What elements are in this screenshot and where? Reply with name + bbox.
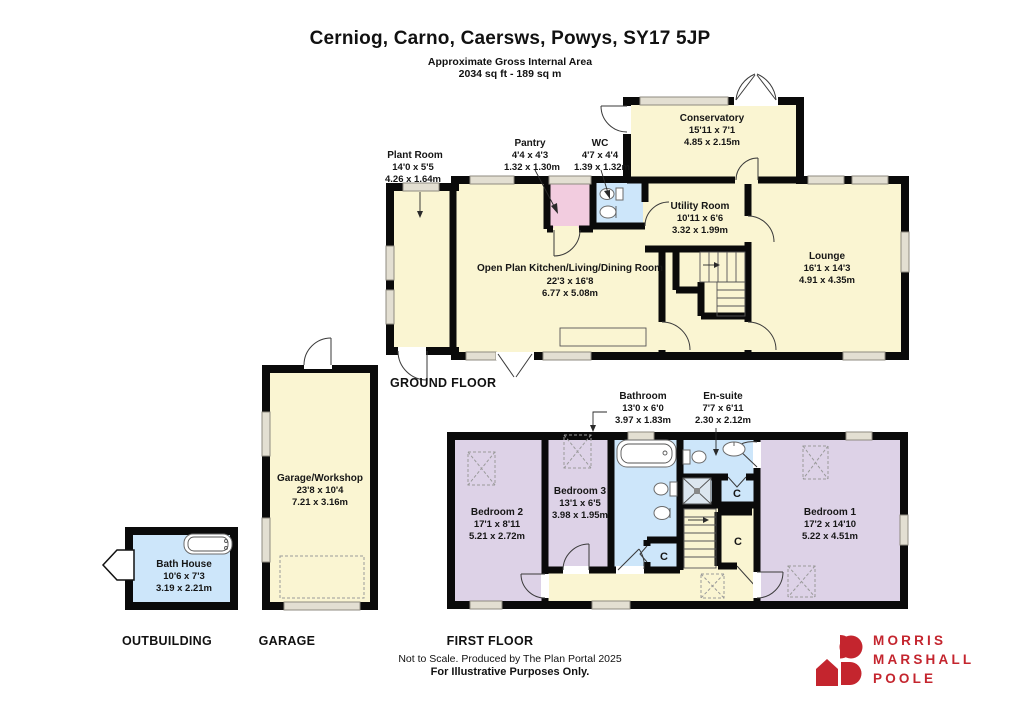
room-label-wc: WC 4'7 x 4'4 1.39 x 1.32m: [574, 138, 630, 173]
svg-text:15'11 x 7'1: 15'11 x 7'1: [689, 125, 736, 136]
wc-sink-icon: [600, 206, 616, 218]
logo-line-poole: POOLE: [873, 669, 974, 688]
svg-text:1.32 x 1.30m: 1.32 x 1.30m: [504, 162, 560, 173]
svg-text:17'2 x 14'10: 17'2 x 14'10: [804, 519, 856, 530]
shower-icon: [683, 478, 711, 504]
svg-text:WC: WC: [592, 138, 609, 149]
svg-text:2.30 x 2.12m: 2.30 x 2.12m: [695, 415, 751, 426]
svg-text:Bathroom: Bathroom: [619, 391, 666, 402]
svg-text:1.39 x 1.32m: 1.39 x 1.32m: [574, 162, 630, 173]
room-label-plant-room: Plant Room 14'0 x 5'5 4.26 x 1.64m: [385, 150, 443, 185]
svg-text:Garage/Workshop: Garage/Workshop: [277, 473, 363, 484]
room-label-bath-house: Bath House 10'6 x 7'3 3.19 x 2.21m: [156, 559, 212, 594]
garage-label: GARAGE: [245, 634, 329, 648]
ensuite-toilet-icon: [683, 450, 706, 464]
svg-text:4'7 x 4'4: 4'7 x 4'4: [582, 150, 619, 161]
floorplan-page: Cerniog, Carno, Caersws, Powys, SY17 5JP…: [0, 0, 1020, 720]
room-label-bathroom: Bathroom 13'0 x 6'0 3.97 x 1.83m: [615, 391, 671, 426]
svg-text:16'1 x 14'3: 16'1 x 14'3: [804, 263, 851, 274]
room-label-conservatory: Conservatory 15'11 x 7'1 4.85 x 2.15m: [680, 113, 745, 148]
first-floor-plan: C C C Bathroom 13'0 x 6'0 3.97 x 1.83m E…: [451, 391, 908, 609]
outbuilding-label: OUTBUILDING: [104, 634, 230, 648]
svg-text:Lounge: Lounge: [809, 251, 846, 262]
svg-text:3.97 x 1.83m: 3.97 x 1.83m: [615, 415, 671, 426]
svg-text:Plant Room: Plant Room: [387, 150, 443, 161]
svg-text:Utility Room: Utility Room: [671, 201, 730, 212]
svg-text:Conservatory: Conservatory: [680, 113, 745, 124]
svg-text:10'6 x 7'3: 10'6 x 7'3: [163, 571, 205, 582]
svg-text:13'0 x 6'0: 13'0 x 6'0: [622, 403, 664, 414]
agency-logo-mark-icon: [812, 631, 864, 691]
svg-text:6.77 x 5.08m: 6.77 x 5.08m: [542, 288, 598, 299]
svg-text:4.85 x 2.15m: 4.85 x 2.15m: [684, 137, 740, 148]
ensuite-sink-icon: [723, 442, 745, 456]
svg-text:5.22 x 4.51m: 5.22 x 4.51m: [802, 531, 858, 542]
svg-text:En-suite: En-suite: [703, 391, 743, 402]
ground-floor-plan: Plant Room 14'0 x 5'5 4.26 x 1.64m Pantr…: [385, 74, 909, 380]
svg-text:4.26 x 1.64m: 4.26 x 1.64m: [385, 174, 441, 185]
bathroom-toilet-icon: [654, 482, 677, 496]
svg-text:7.21 x 3.16m: 7.21 x 3.16m: [292, 497, 348, 508]
logo-line-morris: MORRIS: [873, 631, 974, 650]
svg-text:3.98 x 1.95m: 3.98 x 1.95m: [552, 510, 608, 521]
bathtub-first-icon: [617, 440, 676, 467]
room-label-bedroom3: Bedroom 3 13'1 x 6'5 3.98 x 1.95m: [552, 486, 608, 521]
entrance-arrow-icon: [103, 550, 134, 580]
svg-text:Open Plan Kitchen/Living/Dinin: Open Plan Kitchen/Living/Dining Room: [477, 263, 663, 274]
logo-line-marshall: MARSHALL: [873, 650, 974, 669]
svg-text:14'0 x 5'5: 14'0 x 5'5: [392, 162, 434, 173]
room-label-pantry: Pantry 4'4 x 4'3 1.32 x 1.30m: [504, 138, 560, 173]
first-floor-label: FIRST FLOOR: [438, 634, 542, 648]
svg-text:Bedroom 1: Bedroom 1: [804, 507, 857, 518]
bathroom-sink-icon: [654, 507, 670, 520]
garage-plan: Garage/Workshop 23'8 x 10'4 7.21 x 3.16m: [262, 338, 374, 610]
wc-toilet-icon: [600, 188, 623, 200]
room-label-bedroom1: Bedroom 1 17'2 x 14'10 5.22 x 4.51m: [802, 507, 858, 542]
ground-floor-footprint: [390, 101, 905, 356]
svg-text:Pantry: Pantry: [514, 138, 546, 149]
svg-text:3.32 x 1.99m: 3.32 x 1.99m: [672, 225, 728, 236]
closet-label: C: [660, 551, 668, 563]
floorplan-drawing: Plant Room 14'0 x 5'5 4.26 x 1.64m Pantr…: [0, 0, 1020, 720]
bathtub-icon: [184, 534, 232, 554]
room-label-utility: Utility Room 10'11 x 6'6 3.32 x 1.99m: [671, 201, 730, 236]
svg-text:22'3 x 16'8: 22'3 x 16'8: [547, 276, 594, 287]
svg-text:5.21 x 2.72m: 5.21 x 2.72m: [469, 531, 525, 542]
agency-logo: MORRIS MARSHALL POOLE: [812, 631, 974, 691]
svg-text:10'11 x 6'6: 10'11 x 6'6: [677, 213, 723, 224]
svg-text:13'1 x 6'5: 13'1 x 6'5: [559, 498, 601, 509]
svg-text:3.19 x 2.21m: 3.19 x 2.21m: [156, 583, 212, 594]
svg-text:Bath House: Bath House: [156, 559, 212, 570]
svg-text:Bedroom 2: Bedroom 2: [471, 507, 524, 518]
ground-floor-label: GROUND FLOOR: [390, 376, 496, 390]
closet-label: C: [734, 536, 742, 548]
svg-text:Bedroom 3: Bedroom 3: [554, 486, 607, 497]
svg-text:17'1 x 8'11: 17'1 x 8'11: [474, 519, 521, 530]
svg-text:23'8 x 10'4: 23'8 x 10'4: [297, 485, 344, 496]
agency-logo-text: MORRIS MARSHALL POOLE: [873, 631, 974, 688]
bath-house-plan: Bath House 10'6 x 7'3 3.19 x 2.21m: [103, 531, 234, 606]
svg-text:7'7 x 6'11: 7'7 x 6'11: [703, 403, 745, 414]
closet-label: C: [733, 488, 741, 500]
room-label-ensuite: En-suite 7'7 x 6'11 2.30 x 2.12m: [695, 391, 751, 426]
svg-text:4.91 x 4.35m: 4.91 x 4.35m: [799, 275, 855, 286]
svg-text:4'4 x 4'3: 4'4 x 4'3: [512, 150, 548, 161]
room-label-bedroom2: Bedroom 2 17'1 x 8'11 5.21 x 2.72m: [469, 507, 525, 542]
